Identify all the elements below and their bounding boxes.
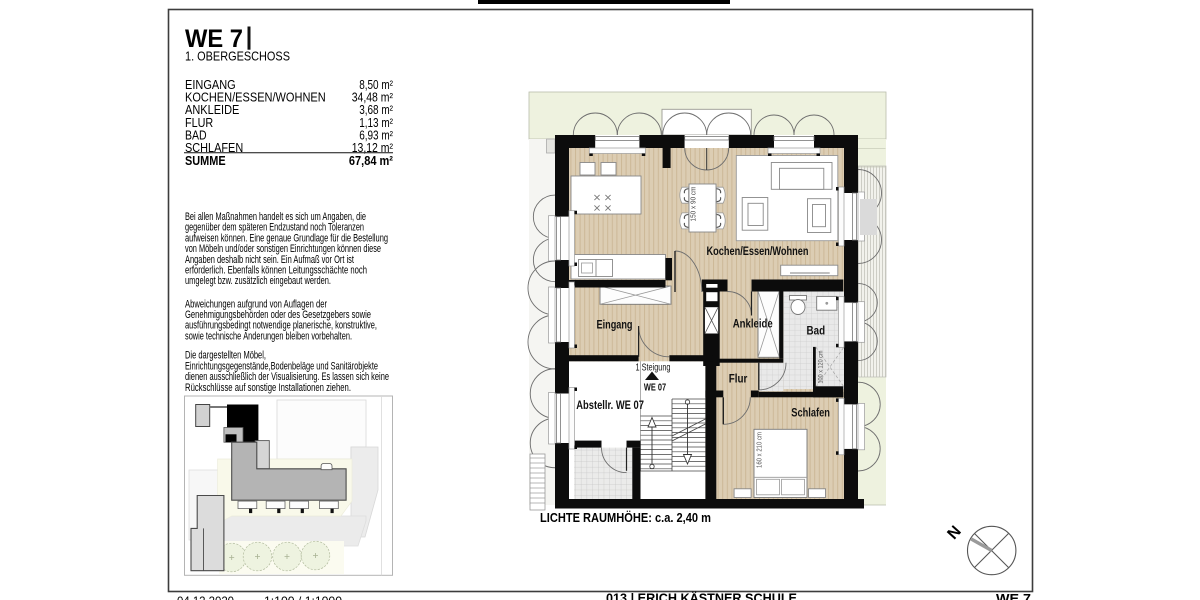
svg-text:Eingang: Eingang [597,318,633,332]
svg-text:150 x 90 cm: 150 x 90 cm [689,187,698,222]
svg-text:67,84 m²: 67,84 m² [349,153,394,168]
svg-text:SUMME: SUMME [185,153,226,168]
svg-text:WE 7: WE 7 [996,592,1031,600]
svg-text:Schlafen: Schlafen [791,406,830,420]
svg-text:Rückschlüsse auf sonstige Inst: Rückschlüsse auf sonstige Installationen… [185,382,351,394]
svg-text:sowie technische Änderungen bl: sowie technische Änderungen bleiben vorb… [185,331,352,343]
svg-text:Flur: Flur [729,372,748,386]
svg-text:1 Steigung: 1 Steigung [636,363,671,374]
svg-text:1. OBERGESCHOSS: 1. OBERGESCHOSS [185,49,290,64]
svg-text:Kochen/Essen/Wohnen: Kochen/Essen/Wohnen [707,244,809,258]
svg-text:Abstellr. WE 07: Abstellr. WE 07 [576,398,644,412]
svg-text:100 x 120 cm: 100 x 120 cm [818,350,825,383]
svg-text:Bad: Bad [807,324,826,338]
svg-text:04.12.2020: 04.12.2020 [177,594,234,600]
svg-text:Ankleide: Ankleide [733,317,773,331]
svg-text:1:100 / 1:1000: 1:100 / 1:1000 [264,594,342,600]
svg-text:160 x 210 cm: 160 x 210 cm [757,432,764,468]
svg-text:WE 07: WE 07 [644,382,666,394]
svg-text:LICHTE RAUMHÖHE: c.a. 2,40 m: LICHTE RAUMHÖHE: c.a. 2,40 m [540,510,711,525]
svg-text:umgelegt bzw. zusätzlich einge: umgelegt bzw. zusätzlich eingebaut werde… [185,275,331,287]
svg-text:013 | ERICH KÄSTNER SCHULE: 013 | ERICH KÄSTNER SCHULE [606,591,797,600]
